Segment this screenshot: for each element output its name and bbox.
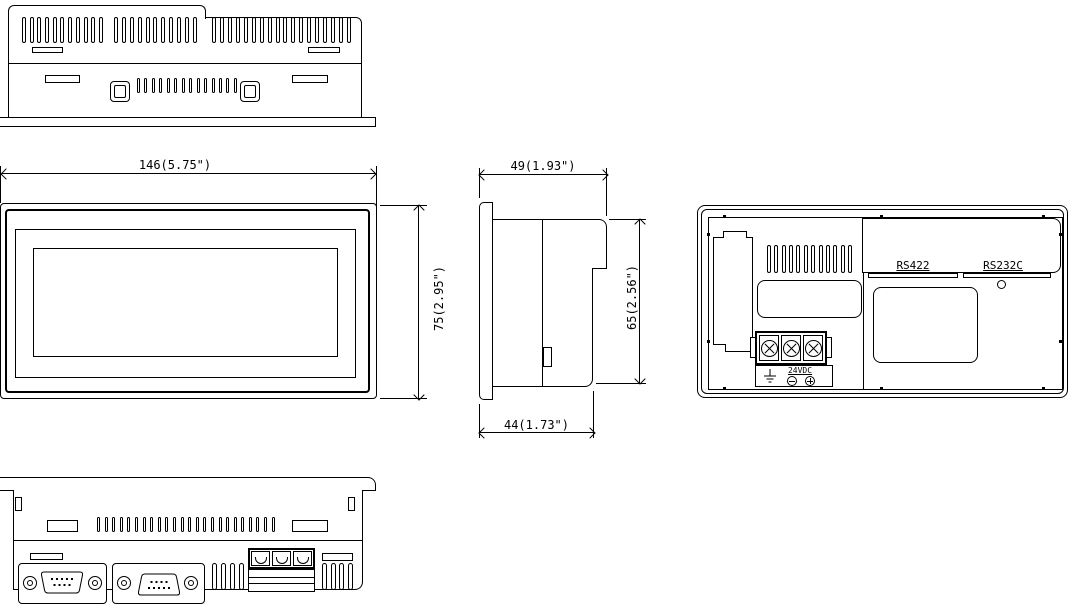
top-view-vent-group-1 [22, 17, 103, 43]
top-view-mid-vent-row [137, 78, 237, 93]
vent-slot [165, 517, 168, 532]
bottom-view-terminal-block [248, 548, 315, 569]
top-view-mounting-clip-left [110, 81, 130, 102]
dimension-depth-total-label: 49(1.93") [479, 160, 607, 172]
vent-slot [159, 78, 162, 93]
mounting-tick [1042, 387, 1045, 390]
terminal-body-line [249, 577, 314, 578]
vent-slot [322, 563, 327, 590]
vent-slot [203, 517, 206, 532]
connector-screw-icon [23, 576, 37, 590]
vent-slot [182, 78, 185, 93]
rs232c-port-label: RS232C [956, 260, 1050, 272]
vent-slot [152, 78, 155, 93]
vent-slot [197, 78, 200, 93]
db9-dsub-icon [137, 571, 181, 596]
vent-slot [204, 78, 207, 93]
vent-slot [796, 245, 800, 273]
dimension-depth-body-label: 44(1.73") [479, 419, 594, 431]
dimension-depth-body-line [479, 432, 594, 433]
vent-slot [193, 17, 197, 43]
rs422-connector-slot [868, 273, 958, 278]
bottom-view-clip-left [15, 497, 22, 511]
mounting-tick [880, 387, 883, 390]
vent-slot [45, 17, 49, 43]
vent-slot [37, 17, 41, 43]
terminal-screw-icon [783, 340, 800, 357]
bottom-view-slot-left [47, 520, 78, 532]
vent-slot [226, 517, 229, 532]
vent-slot [264, 517, 267, 532]
connector-screw-icon [117, 576, 131, 590]
vent-slot [130, 17, 134, 43]
rs232c-connector-slot [963, 273, 1051, 278]
mounting-tick [1042, 215, 1045, 218]
mounting-tick [707, 340, 710, 343]
vent-slot [84, 17, 88, 43]
vent-slot [291, 17, 295, 43]
side-view-front-flange [479, 202, 493, 400]
vent-slot [339, 563, 344, 590]
vent-slot [268, 17, 272, 43]
side-view-body-upper [492, 219, 607, 269]
vent-slot [249, 517, 252, 532]
vent-slot [161, 17, 165, 43]
mounting-tick [723, 387, 726, 390]
vent-slot [234, 517, 237, 532]
top-view-slot-left [32, 47, 63, 53]
vent-slot [220, 17, 224, 43]
db9-dsub-icon [40, 571, 84, 596]
mounting-tick [1059, 340, 1062, 343]
vent-slot [228, 17, 232, 43]
vent-slot [230, 563, 235, 590]
top-view-lower-slot-left [45, 75, 80, 83]
vent-slot [331, 17, 335, 43]
vent-slot [236, 17, 240, 43]
vent-slot [105, 517, 108, 532]
rear-view-compartment-tab [723, 231, 747, 238]
terminal-cell [803, 335, 823, 361]
vent-slot [256, 517, 259, 532]
vent-slot [177, 17, 181, 43]
rear-view-label-plate-small [757, 280, 862, 318]
side-view-slot-detail [543, 347, 552, 367]
dimension-height-label: 75(2.95") [433, 273, 445, 331]
vent-slot [60, 17, 64, 43]
side-view-step-line [593, 268, 607, 269]
vent-slot [22, 17, 26, 43]
vent-slot [150, 517, 153, 532]
bottom-view-slot-right [292, 520, 328, 532]
vent-slot [819, 245, 823, 273]
vent-slot [272, 517, 275, 532]
terminal-body-line [249, 583, 314, 584]
power-voltage-label: 24VDC [784, 367, 816, 375]
mounting-tick [723, 215, 726, 218]
top-view-vent-group-2 [114, 17, 197, 43]
rear-view-vent-group [767, 245, 852, 273]
vent-slot [189, 78, 192, 93]
mounting-tick [1059, 233, 1062, 236]
vent-slot [143, 517, 146, 532]
terminal-cell [293, 551, 312, 566]
mounting-tick [707, 233, 710, 236]
bottom-view-terminal-body [248, 569, 315, 592]
terminal-screw-icon [761, 340, 778, 357]
terminal-cell [759, 335, 779, 361]
bottom-view-small-slot [30, 553, 63, 560]
vent-slot [153, 17, 157, 43]
arrowhead-up-icon [413, 204, 424, 215]
vent-slot [307, 17, 311, 43]
bottom-view-vent-group-left [212, 563, 244, 590]
vent-slot [135, 517, 138, 532]
dimension-panel-height-line [639, 219, 640, 383]
vent-slot [252, 17, 256, 43]
vent-slot [276, 17, 280, 43]
dimension-depth-total-ext-left [479, 168, 480, 198]
dimension-width-ext-right [376, 166, 377, 207]
vent-slot [833, 245, 837, 273]
vent-slot [169, 17, 173, 43]
minus-polarity-icon [787, 376, 797, 386]
dimension-depth-total-ext-right [606, 168, 607, 216]
vent-slot [789, 245, 793, 273]
vent-slot [348, 563, 353, 590]
connector-screw-icon [88, 576, 102, 590]
terminal-clamp-icon [255, 557, 267, 564]
top-view-front-bezel-edge [0, 117, 376, 127]
vent-slot [260, 17, 264, 43]
vent-slot [97, 517, 100, 532]
dimension-depth-total-line [479, 174, 607, 175]
rs422-port-label: RS422 [866, 260, 960, 272]
connector-screw-icon [184, 576, 198, 590]
bottom-view-divider-line [14, 540, 362, 541]
vent-slot [185, 17, 189, 43]
terminal-clamp-icon [276, 557, 288, 564]
vent-slot [76, 17, 80, 43]
vent-slot [241, 517, 244, 532]
vent-slot [234, 78, 237, 93]
vent-slot [138, 17, 142, 43]
top-view-slot-right [308, 47, 340, 53]
bottom-view-vent-row [97, 517, 275, 532]
rear-view-compartment [713, 237, 753, 345]
dimension-panel-height-ext-bottom [596, 383, 646, 384]
plus-polarity-icon [805, 376, 815, 386]
dimension-height-line [418, 205, 419, 399]
dimension-panel-height-label: 65(2.56") [626, 272, 638, 330]
vent-slot [91, 17, 95, 43]
vent-slot [144, 78, 147, 93]
vent-slot [167, 78, 170, 93]
vent-slot [99, 17, 103, 43]
terminal-cell [781, 335, 801, 361]
vent-slot [315, 17, 319, 43]
vent-slot [127, 517, 130, 532]
vent-slot [811, 245, 815, 273]
rear-view-compartment-extension [725, 344, 753, 352]
vent-slot [804, 245, 808, 273]
vent-slot [196, 517, 199, 532]
vent-slot [68, 17, 72, 43]
terminal-cell [251, 551, 270, 566]
vent-slot [122, 17, 126, 43]
vent-slot [221, 563, 226, 590]
vent-slot [848, 245, 852, 273]
vent-slot [339, 17, 343, 43]
bottom-view-vent-group-right [322, 563, 353, 590]
vent-slot [174, 78, 177, 93]
vent-slot [181, 517, 184, 532]
ground-icon [762, 368, 778, 384]
terminal-cell [272, 551, 291, 566]
vent-slot [767, 245, 771, 273]
dimension-height-ext-bottom [380, 398, 427, 399]
terminal-block [755, 331, 827, 365]
vent-slot [137, 78, 140, 93]
vent-slot [841, 245, 845, 273]
vent-slot [283, 17, 287, 43]
bottom-view-clip-right [348, 497, 355, 511]
bottom-view-slot-far-right [322, 553, 353, 561]
vent-slot [347, 17, 351, 43]
terminal-clamp-icon [297, 557, 309, 564]
vent-slot [158, 517, 161, 532]
vent-slot [53, 17, 57, 43]
vent-slot [30, 17, 34, 43]
dimension-width-ext-left [0, 166, 1, 203]
vent-slot [219, 517, 222, 532]
dimension-panel-height-ext-top [609, 219, 646, 220]
dimension-height-ext-top [380, 205, 427, 206]
vent-slot [211, 517, 214, 532]
vent-slot [212, 78, 215, 93]
dimensional-drawing-canvas: 146(5.75") 75(2.95") 49(1.93") 65(2.56") [0, 0, 1073, 604]
vent-slot [173, 517, 176, 532]
front-view-display-area [33, 248, 338, 357]
vent-slot [146, 17, 150, 43]
rear-view-screw-hole [997, 280, 1006, 289]
top-view-lower-slot-right [292, 75, 328, 83]
vent-slot [212, 563, 217, 590]
vent-slot [112, 517, 115, 532]
top-view-vent-group-3 [212, 17, 351, 43]
dimension-width-line [2, 173, 375, 174]
vent-slot [226, 78, 229, 93]
vent-slot [219, 78, 222, 93]
arrowhead-right-icon [365, 168, 376, 179]
vent-slot [331, 563, 336, 590]
vent-slot [244, 17, 248, 43]
vent-slot [299, 17, 303, 43]
rear-view-label-plate-large [873, 287, 978, 363]
vent-slot [774, 245, 778, 273]
terminal-screw-icon [805, 340, 822, 357]
dimension-width-label: 146(5.75") [0, 159, 350, 171]
vent-slot [782, 245, 786, 273]
top-view-divider-line [9, 63, 361, 64]
top-view-mounting-clip-right [240, 81, 260, 102]
vent-slot [212, 17, 216, 43]
vent-slot [114, 17, 118, 43]
arrowhead-up-icon [634, 218, 645, 229]
bottom-view-front-bezel-edge [0, 477, 376, 491]
mounting-tick [880, 215, 883, 218]
vent-slot [239, 563, 244, 590]
vent-slot [120, 517, 123, 532]
vent-slot [826, 245, 830, 273]
vent-slot [323, 17, 327, 43]
vent-slot [188, 517, 191, 532]
